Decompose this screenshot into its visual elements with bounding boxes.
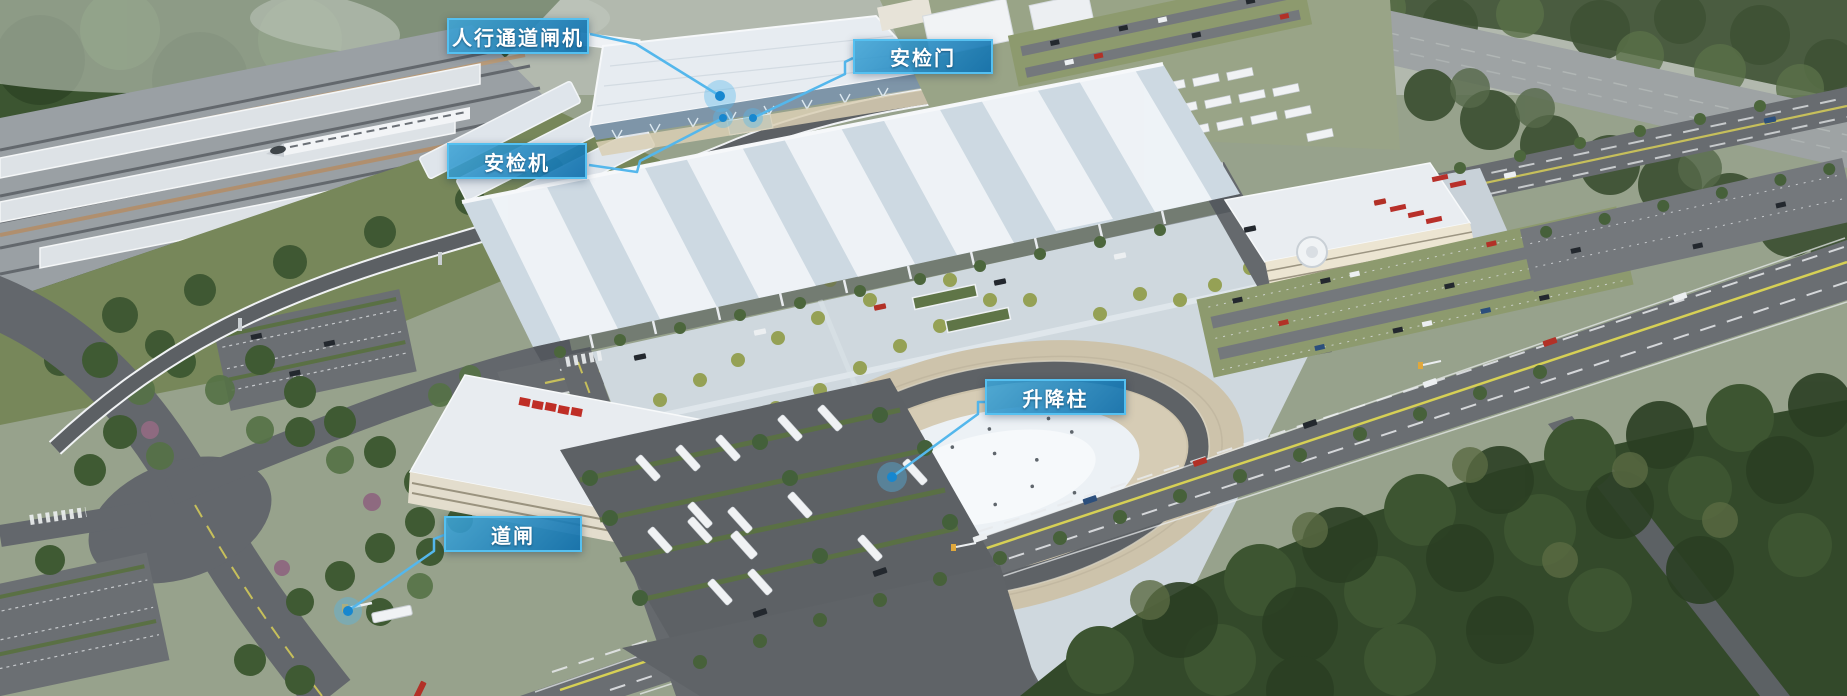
callout-pedestrian-channel-gate[interactable]: 人行通道闸机 xyxy=(447,18,589,54)
callout-lifting-bollard[interactable]: 升降柱 xyxy=(985,379,1126,415)
target-dot-road-barrier-gate[interactable] xyxy=(343,606,353,616)
callout-security-door[interactable]: 安检门 xyxy=(853,39,993,74)
callout-road-barrier-gate[interactable]: 道闸 xyxy=(444,516,582,552)
scene-render xyxy=(0,0,1847,696)
target-dot-lifting-bollard[interactable] xyxy=(887,472,897,482)
target-dot-pedestrian-channel-gate[interactable] xyxy=(715,91,725,101)
target-dot-security-scanner[interactable] xyxy=(719,114,727,122)
callout-security-scanner[interactable]: 安检机 xyxy=(447,143,587,179)
annotated-station-render: 人行通道闸机 安检门 安检机 升降柱 道闸 xyxy=(0,0,1847,696)
target-dot-security-door[interactable] xyxy=(749,114,757,122)
